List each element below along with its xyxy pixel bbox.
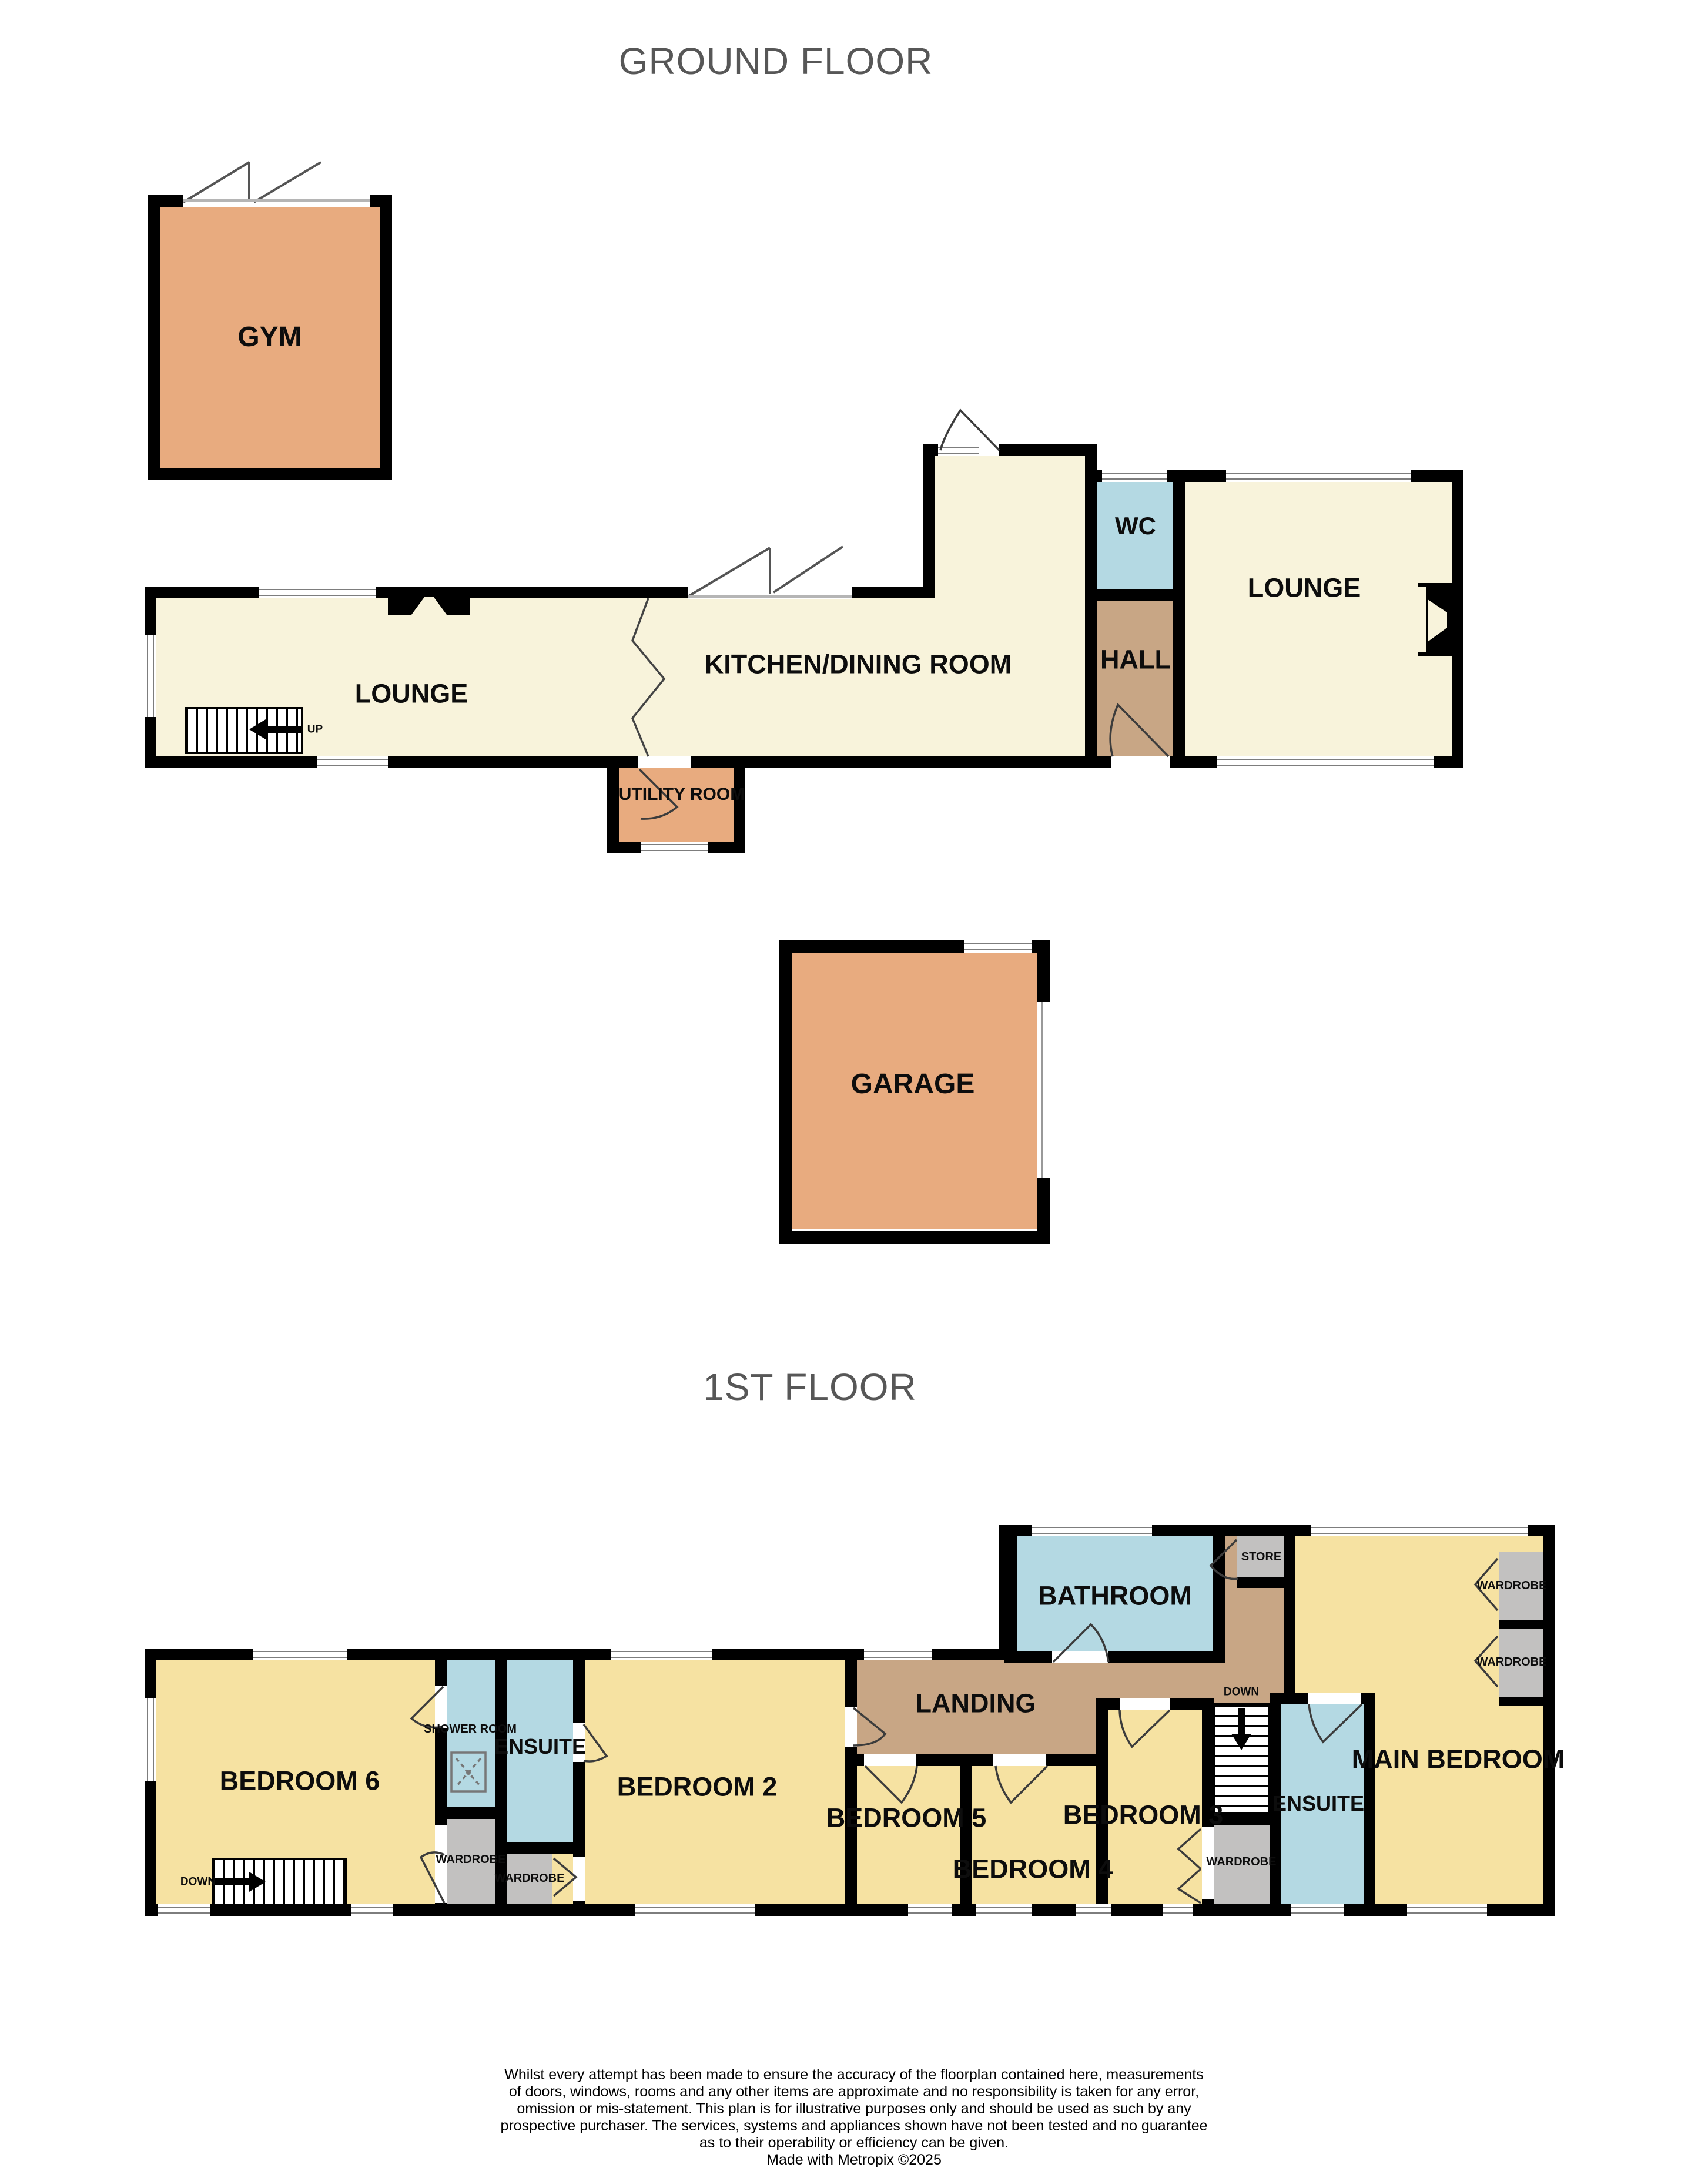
window <box>1217 756 1434 768</box>
door-opening <box>573 1857 585 1901</box>
wardrobe-label: WARDROBE <box>495 1872 565 1884</box>
bedroom5-label: BEDROOM 5 <box>826 1805 987 1831</box>
stairs-down <box>212 1858 347 1905</box>
window <box>864 1649 932 1660</box>
wall <box>145 1649 156 1916</box>
window <box>1226 470 1411 482</box>
stairs-down-label: DOWN <box>180 1877 216 1888</box>
room-utility <box>619 768 734 842</box>
room-kitchen-notch <box>935 456 1085 598</box>
window <box>259 587 376 598</box>
window <box>1076 1904 1111 1916</box>
fireplace-icon <box>1418 583 1452 656</box>
wall <box>1037 1178 1050 1244</box>
window <box>1102 470 1167 482</box>
window <box>253 1649 347 1660</box>
wall <box>1364 1704 1375 1904</box>
window <box>635 1904 755 1916</box>
wall <box>607 756 619 853</box>
window <box>1407 1904 1487 1916</box>
window <box>145 635 156 717</box>
door-opening <box>638 756 691 768</box>
wall <box>447 1807 495 1819</box>
window <box>938 444 979 456</box>
bedroom2-label: BEDROOM 2 <box>617 1774 778 1800</box>
lounge-left-label: LOUNGE <box>355 681 468 707</box>
stairs-up-label: UP <box>307 724 323 735</box>
door-opening <box>1052 1651 1108 1663</box>
door-opening <box>1120 1698 1170 1710</box>
wall <box>1037 940 1050 1002</box>
stairs-up <box>185 707 303 754</box>
wardrobe-label: WARDROBE <box>436 1854 506 1865</box>
room-bedroom5 <box>857 1766 960 1904</box>
garage-label: GARAGE <box>851 1070 975 1098</box>
door-opening <box>1111 756 1170 768</box>
disclaimer-line: of doors, windows, rooms and any other i… <box>0 2083 1708 2100</box>
ensuite-right-label: ENSUITE <box>1272 1793 1364 1814</box>
bedroom4-label: BEDROOM 4 <box>953 1856 1113 1882</box>
floorplan-page: GROUND FLOOR 1ST FLOOR <box>0 0 1708 2171</box>
hall-label: HALL <box>1100 646 1171 673</box>
bedroom3-label: BEDROOM 3 <box>1063 1802 1224 1828</box>
door-opening <box>845 1707 857 1747</box>
room-main-bedroom <box>1375 1704 1543 1904</box>
ground-floor-title: GROUND FLOOR <box>619 39 933 83</box>
utility-label: UTILITY ROOM <box>619 786 745 803</box>
window <box>317 756 388 768</box>
landing-label: LANDING <box>916 1690 1036 1717</box>
wall <box>148 195 160 480</box>
wall <box>148 468 392 480</box>
wall <box>1097 589 1173 601</box>
room-hall <box>1097 601 1173 756</box>
disclaimer-line: as to their operability or efficiency ca… <box>0 2135 1708 2152</box>
wall <box>1284 1525 1295 1704</box>
window <box>908 1904 952 1916</box>
store-label: STORE <box>1241 1551 1282 1563</box>
stairs-down-middle <box>1214 1703 1270 1814</box>
window <box>351 1904 393 1916</box>
disclaimer: Whilst every attempt has been made to en… <box>0 2066 1708 2169</box>
wall <box>507 1842 573 1854</box>
window <box>611 1649 712 1660</box>
window <box>976 1904 1032 1916</box>
wardrobe-label: WARDROBE <box>1477 1580 1547 1592</box>
window <box>1291 1904 1344 1916</box>
window <box>641 842 708 853</box>
door-opening <box>1308 1693 1361 1704</box>
wall <box>1004 1651 1225 1663</box>
wc-label: WC <box>1115 514 1156 538</box>
window <box>964 940 1032 953</box>
window <box>1032 1525 1152 1536</box>
wall <box>1085 444 1097 756</box>
window <box>145 1698 156 1781</box>
fireplace-icon <box>388 587 470 615</box>
wall <box>734 756 745 853</box>
gym-label: GYM <box>237 323 302 351</box>
wall <box>845 1660 857 1904</box>
wall <box>779 1231 1050 1244</box>
door-opening <box>864 1754 916 1766</box>
wall <box>1173 482 1185 756</box>
door-opening <box>688 585 852 599</box>
credit-line: Made with Metropix ©2025 <box>0 2152 1708 2169</box>
wall <box>1213 1536 1225 1663</box>
wall <box>1237 1577 1284 1588</box>
wall <box>1499 1620 1543 1629</box>
kitchen-dining-label: KITCHEN/DINING ROOM <box>705 651 1012 678</box>
wall <box>495 1660 507 1904</box>
bathroom-label: BATHROOM <box>1038 1583 1192 1609</box>
first-floor-title: 1ST FLOOR <box>703 1365 916 1409</box>
wall <box>1499 1697 1543 1706</box>
room-lounge-right <box>1185 482 1452 756</box>
ensuite-left-label: ENSUITE <box>494 1736 586 1757</box>
window <box>158 1904 210 1916</box>
lounge-right-label: LOUNGE <box>1248 575 1361 601</box>
wall <box>923 444 935 598</box>
window <box>1311 1525 1528 1536</box>
disclaimer-line: prospective purchaser. The services, sys… <box>0 2118 1708 2135</box>
wall <box>779 940 792 1244</box>
landing-down-label: DOWN <box>1224 1687 1259 1698</box>
door-opening <box>183 195 370 207</box>
wardrobe-label: WARDROBE <box>1477 1656 1547 1668</box>
disclaimer-line: omission or mis-statement. This plan is … <box>0 2100 1708 2118</box>
disclaimer-line: Whilst every attempt has been made to en… <box>0 2066 1708 2083</box>
wall <box>1004 1536 1017 1663</box>
shower-room-label: SHOWER ROOM <box>424 1723 517 1735</box>
door-opening <box>993 1754 1046 1766</box>
wall <box>380 195 392 480</box>
bedroom6-label: BEDROOM 6 <box>220 1768 380 1794</box>
main-bedroom-label: MAIN BEDROOM <box>1352 1746 1565 1773</box>
wall <box>1452 470 1463 768</box>
wardrobe-label: WARDROBE <box>1207 1856 1277 1868</box>
door-opening <box>435 1686 447 1728</box>
window <box>1163 1904 1193 1916</box>
